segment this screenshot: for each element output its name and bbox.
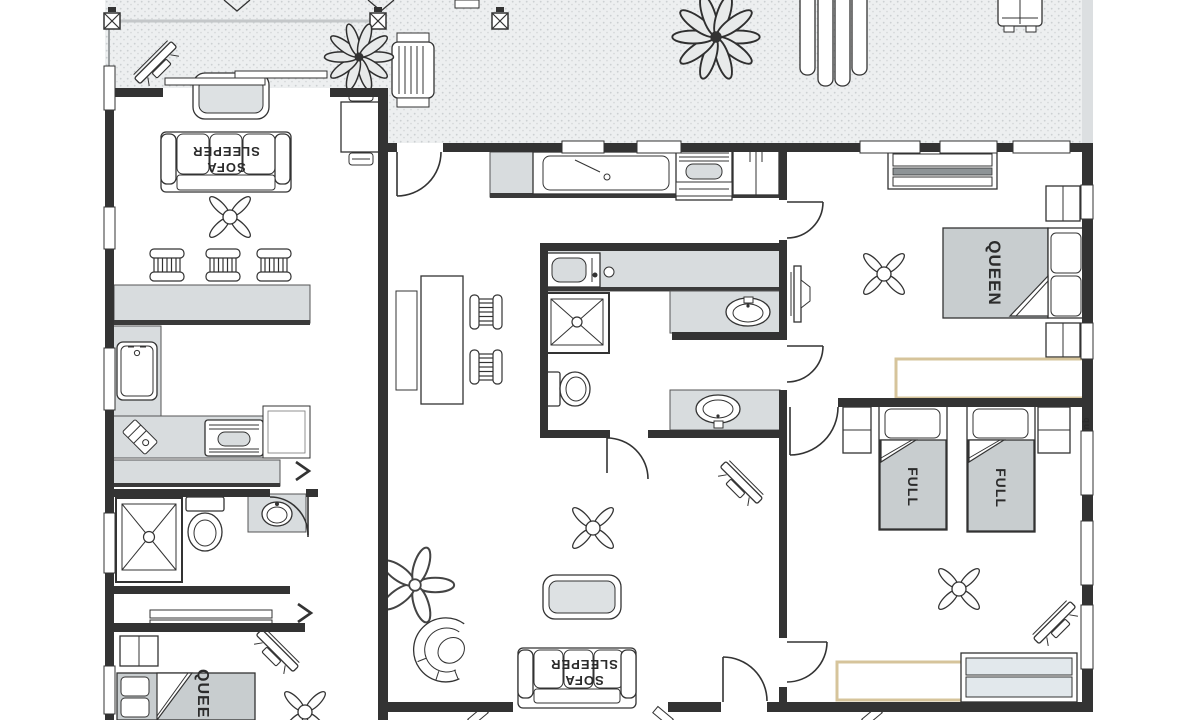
- queen-bedroom: QUEEN: [791, 149, 1085, 398]
- window: [940, 141, 997, 153]
- vanity-sink: [248, 494, 306, 532]
- stove: [676, 148, 732, 200]
- door-swing: [787, 202, 823, 238]
- sofa-label-line2: SLEEPER: [192, 144, 260, 159]
- armchair: [401, 605, 490, 694]
- bar-counter: [114, 285, 310, 323]
- window: [1013, 141, 1070, 153]
- tv-icon: [715, 459, 765, 509]
- left-unit: SOFA SLEEPER: [113, 23, 394, 720]
- bar-stool-icon: [150, 249, 184, 281]
- window: [1081, 605, 1093, 669]
- microwave: [546, 253, 600, 287]
- toilet: [545, 372, 590, 406]
- vanity-sink-2: [670, 390, 780, 430]
- window: [860, 141, 920, 153]
- door-swing: [723, 657, 767, 702]
- shower: [116, 498, 182, 582]
- door-swing: [607, 438, 648, 479]
- coffee-table: [543, 575, 621, 619]
- window: [104, 66, 115, 110]
- toilet: [186, 497, 224, 551]
- kitchen-sink: [117, 342, 157, 400]
- bar-stool-icon: [470, 295, 502, 329]
- nightstand: [1046, 323, 1080, 357]
- tv-icon: [251, 627, 301, 677]
- ceiling-fan-icon: [570, 505, 616, 551]
- stove: [205, 420, 263, 456]
- door-swing: [790, 407, 838, 455]
- ceiling-fan-icon: [936, 566, 982, 612]
- closet: [837, 662, 963, 700]
- vanity-sink-1: [670, 291, 780, 333]
- deck-lounge-chair: [392, 33, 434, 107]
- corner-cabinet: [263, 406, 310, 458]
- bar-stool-icon: [257, 249, 291, 281]
- wall-note: qu: [1082, 418, 1092, 431]
- queen-bed-left: QUEEN: [117, 669, 255, 720]
- nightstand: [1046, 186, 1080, 221]
- door-swing: [787, 346, 823, 382]
- queen-bed: QUEEN: [943, 228, 1085, 318]
- window: [104, 348, 115, 410]
- bar-stool-icon: [470, 350, 502, 384]
- hall-shelf: [113, 460, 280, 486]
- queen-bed-label: QUEEN: [194, 669, 211, 720]
- ceiling-fan-icon: [282, 689, 328, 720]
- kitchen-sink: [533, 152, 681, 194]
- side-table-with-chairs: [341, 89, 379, 165]
- refrigerator: [733, 147, 779, 195]
- deck-right-edge: [1082, 0, 1093, 143]
- sofa-label-line1: SOFA: [206, 160, 245, 175]
- full-bed-1: FULL: [879, 404, 947, 530]
- ceiling-fan-icon: [207, 194, 253, 240]
- bifold-door-icon: [298, 604, 311, 622]
- plant-icon: [379, 546, 454, 625]
- ceiling-fan-icon: [861, 251, 907, 297]
- window: [1081, 323, 1093, 359]
- floor-plan-page: SOFA SLEEPER: [0, 0, 1183, 720]
- door-swing: [787, 642, 827, 682]
- main-unit-kitchen: [396, 147, 783, 430]
- window: [562, 141, 604, 153]
- window: [1081, 185, 1093, 219]
- full-bed-2: FULL: [967, 404, 1035, 532]
- window: [104, 207, 115, 249]
- shower: [545, 293, 609, 353]
- full-bed-label: FULL: [993, 468, 1009, 508]
- countertop-item: [604, 267, 614, 277]
- deck-table-cutoff: [455, 0, 479, 8]
- kitchen-island: [396, 276, 463, 404]
- tv-icon: [1031, 599, 1081, 649]
- nightstand: [1038, 407, 1070, 453]
- window: [104, 513, 115, 573]
- full-bed-label: FULL: [905, 467, 921, 507]
- queen-bed-label: QUEEN: [985, 240, 1004, 305]
- sofa-sleeper-left: SOFA SLEEPER: [161, 132, 291, 192]
- bifold-door-icon: [296, 462, 309, 480]
- tv-wall-mounted: [791, 266, 810, 322]
- bar-stool-icon: [206, 249, 240, 281]
- deck-lounge-chairs-cutoff: [800, 0, 867, 86]
- window: [1081, 521, 1093, 585]
- window: [104, 666, 115, 714]
- window: [1081, 431, 1093, 495]
- sofa-label-line2: SLEEPER: [550, 657, 618, 672]
- door-swing: [397, 152, 441, 196]
- sofa-label-line1: SOFA: [564, 673, 603, 688]
- window: [637, 141, 681, 153]
- full-bedroom: FULL FULL: [837, 404, 1081, 711]
- closet: [896, 359, 1084, 398]
- nightstand: [843, 407, 871, 453]
- nightstand: [120, 636, 158, 666]
- dresser: [888, 149, 997, 189]
- main-unit-living: SOFA SLEEPER: [379, 459, 882, 720]
- floor-plan-canvas: SOFA SLEEPER: [0, 0, 1183, 720]
- sofa-sleeper-center: SOFA SLEEPER: [518, 648, 636, 708]
